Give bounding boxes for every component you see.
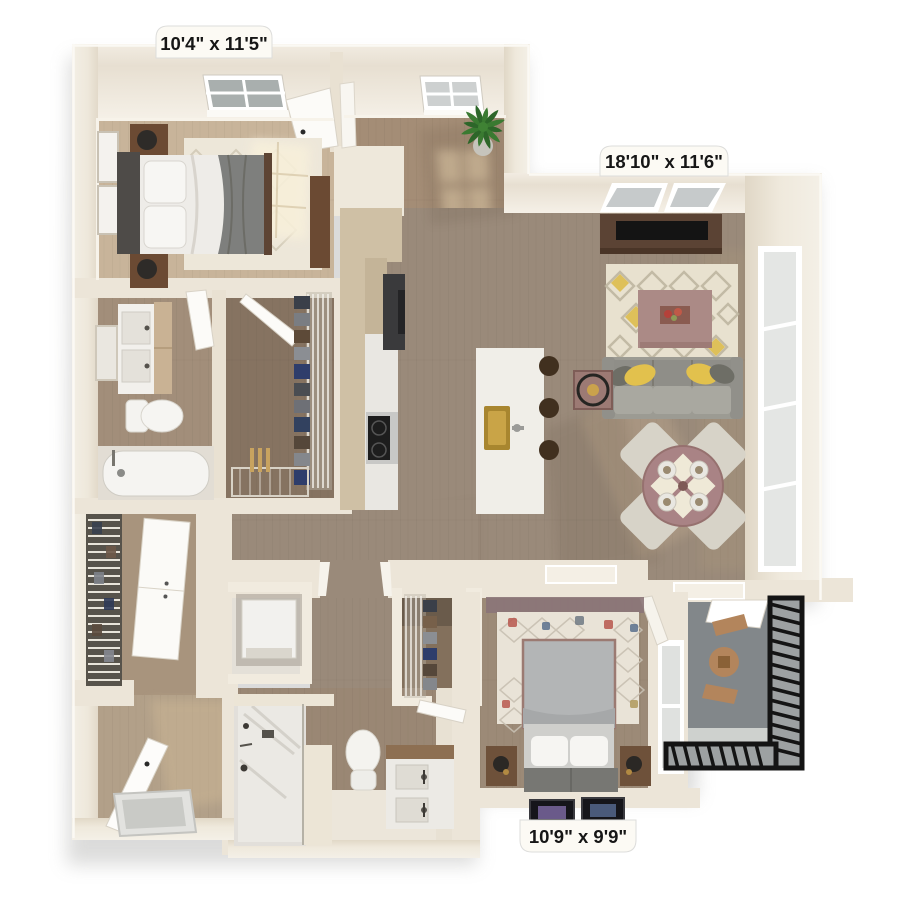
svg-text:10'4" x 11'5": 10'4" x 11'5"	[160, 33, 268, 54]
svg-text:18'10" x 11'6": 18'10" x 11'6"	[605, 151, 723, 172]
svg-text:10'9" x 9'9": 10'9" x 9'9"	[529, 826, 627, 847]
